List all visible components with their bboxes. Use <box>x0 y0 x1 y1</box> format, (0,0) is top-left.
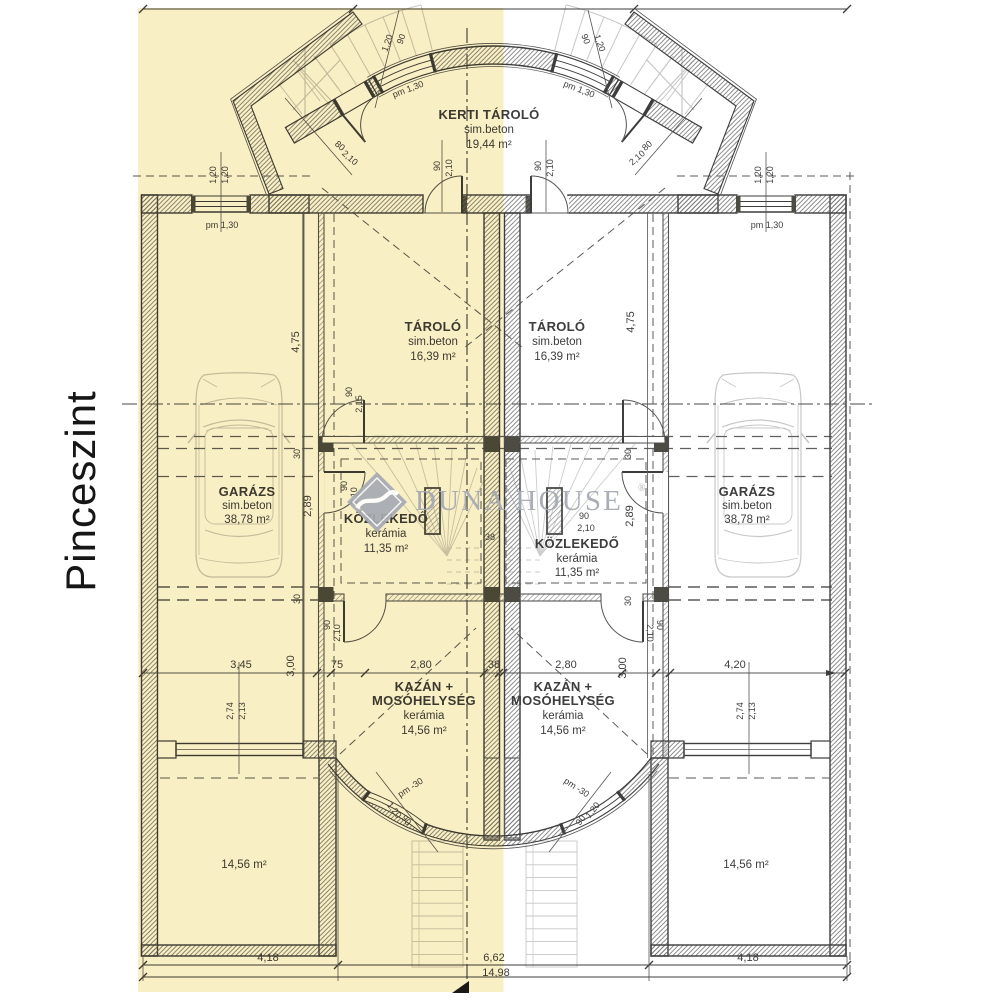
svg-text:4,75: 4,75 <box>625 311 637 332</box>
svg-text:3,00: 3,00 <box>617 657 629 678</box>
svg-text:16,39 m²: 16,39 m² <box>534 351 580 363</box>
svg-text:kerámia: kerámia <box>557 553 599 565</box>
svg-text:®: ® <box>638 483 646 494</box>
svg-text:2,13: 2,13 <box>747 702 757 720</box>
svg-text:2,89: 2,89 <box>624 505 636 526</box>
svg-text:2,10: 2,10 <box>545 159 555 177</box>
svg-text:sim.beton: sim.beton <box>722 500 772 512</box>
svg-text:2,74: 2,74 <box>735 702 745 720</box>
svg-text:GARÁZS: GARÁZS <box>719 484 776 499</box>
svg-text:TÁROLÓ: TÁROLÓ <box>529 319 586 334</box>
svg-text:DUNA HOUSE: DUNA HOUSE <box>415 485 623 517</box>
svg-text:2,10: 2,10 <box>577 523 595 533</box>
svg-text:14,56 m²: 14,56 m² <box>723 859 769 871</box>
svg-text:38,78 m²: 38,78 m² <box>724 514 770 526</box>
svg-text:30: 30 <box>623 449 633 459</box>
svg-text:1,20: 1,20 <box>765 166 775 184</box>
svg-text:kerámia: kerámia <box>543 710 585 722</box>
svg-text:30: 30 <box>623 596 633 606</box>
svg-text:1,20: 1,20 <box>753 166 763 184</box>
svg-text:90: 90 <box>655 620 665 630</box>
svg-text:4,18: 4,18 <box>737 952 758 964</box>
svg-text:MOSÓHELYSÉG: MOSÓHELYSÉG <box>511 693 615 708</box>
svg-text:Pinceszint: Pinceszint <box>57 390 104 591</box>
svg-text:90: 90 <box>533 161 543 171</box>
svg-text:2,80: 2,80 <box>555 659 576 671</box>
svg-text:14,56 m²: 14,56 m² <box>540 725 586 737</box>
svg-text:KAZÁN +: KAZÁN + <box>534 679 593 694</box>
svg-text:KÖZLEKEDŐ: KÖZLEKEDŐ <box>535 536 619 551</box>
svg-text:11,35 m²: 11,35 m² <box>555 567 600 579</box>
svg-text:4,20: 4,20 <box>724 659 745 671</box>
svg-text:pm 1,30: pm 1,30 <box>751 220 784 230</box>
svg-text:2,10: 2,10 <box>645 624 655 642</box>
svg-text:sim.beton: sim.beton <box>532 336 582 348</box>
